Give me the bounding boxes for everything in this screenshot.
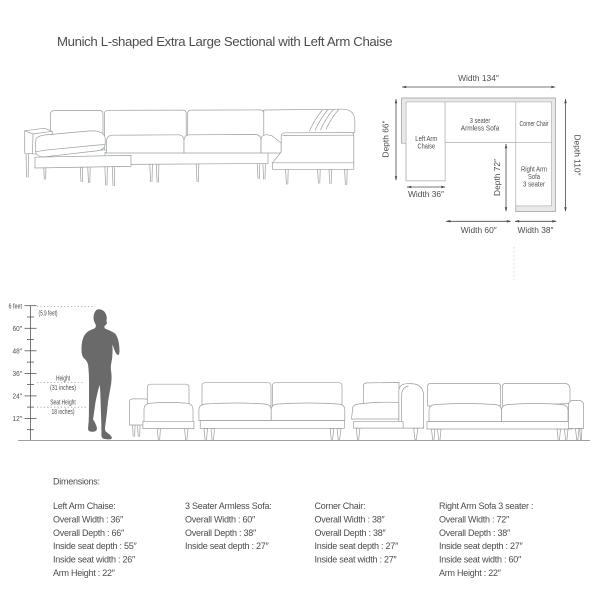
svg-text:Overall Width : 60″: Overall Width : 60″ bbox=[185, 514, 256, 524]
svg-text:Corner Chair:: Corner Chair: bbox=[315, 501, 366, 511]
svg-text:Overall Depth : 66″: Overall Depth : 66″ bbox=[53, 528, 125, 538]
svg-text:36″: 36″ bbox=[13, 369, 23, 378]
svg-text:Width 60″: Width 60″ bbox=[461, 225, 497, 235]
svg-text:60″: 60″ bbox=[13, 324, 23, 333]
svg-text:Overall Depth : 38″: Overall Depth : 38″ bbox=[439, 528, 511, 538]
svg-text:Munich L-shaped Extra Large Se: Munich L-shaped Extra Large Sectional wi… bbox=[57, 34, 392, 49]
svg-text:Depth 66″: Depth 66″ bbox=[381, 120, 391, 157]
svg-text:48″: 48″ bbox=[13, 346, 23, 355]
svg-text:Armless Sofa: Armless Sofa bbox=[461, 124, 500, 133]
svg-text:18 inches): 18 inches) bbox=[52, 407, 75, 416]
svg-text:3 Seater Armless Sofa:: 3 Seater Armless Sofa: bbox=[185, 501, 272, 511]
svg-text:12″: 12″ bbox=[13, 414, 23, 423]
svg-text:Inside seat width : 60″: Inside seat width : 60″ bbox=[439, 555, 522, 565]
svg-text:Overall Depth : 38″: Overall Depth : 38″ bbox=[185, 528, 257, 538]
svg-text:Arm Height : 22″: Arm Height : 22″ bbox=[439, 568, 502, 578]
svg-text:Inside seat depth : 27″: Inside seat depth : 27″ bbox=[185, 541, 270, 551]
svg-text:Dimensions:: Dimensions: bbox=[53, 477, 100, 487]
svg-text:Inside seat depth : 55″: Inside seat depth : 55″ bbox=[53, 541, 138, 551]
svg-text:Inside seat width : 26″: Inside seat width : 26″ bbox=[53, 555, 136, 565]
svg-text:6 feet: 6 feet bbox=[9, 301, 23, 310]
svg-text:Chaise: Chaise bbox=[418, 142, 436, 151]
svg-text:3 seater: 3 seater bbox=[523, 180, 546, 189]
svg-text:Overall Width : 72″: Overall Width : 72″ bbox=[439, 514, 510, 524]
svg-text:Inside seat depth : 27″: Inside seat depth : 27″ bbox=[439, 541, 524, 551]
svg-text:Width 38″: Width 38″ bbox=[517, 225, 553, 235]
svg-text:Depth 110″: Depth 110″ bbox=[573, 135, 583, 176]
svg-text:Overall Width : 36″: Overall Width : 36″ bbox=[53, 514, 124, 524]
svg-text:Corner Chair: Corner Chair bbox=[520, 119, 549, 128]
svg-text:Depth 72″: Depth 72″ bbox=[492, 159, 502, 196]
svg-text:Left Arm Chaise:: Left Arm Chaise: bbox=[53, 501, 116, 511]
svg-text:Overall Depth : 38″: Overall Depth : 38″ bbox=[315, 528, 387, 538]
svg-text:Seat Height: Seat Height bbox=[50, 398, 76, 407]
svg-text:(5.9 feet): (5.9 feet) bbox=[39, 309, 58, 318]
svg-text:Inside seat width : 27″: Inside seat width : 27″ bbox=[315, 555, 398, 565]
svg-text:Right Arm Sofa 3 seater :: Right Arm Sofa 3 seater : bbox=[439, 501, 533, 511]
svg-text:Width 36″: Width 36″ bbox=[408, 189, 444, 199]
svg-text:Inside seat depth : 27″: Inside seat depth : 27″ bbox=[315, 541, 400, 551]
svg-text:Width 134″: Width 134″ bbox=[458, 73, 499, 83]
svg-text:Overall Width : 38″: Overall Width : 38″ bbox=[315, 514, 386, 524]
svg-text:Height: Height bbox=[56, 374, 70, 383]
svg-text:24″: 24″ bbox=[13, 391, 23, 400]
svg-text:Arm Height : 22″: Arm Height : 22″ bbox=[53, 568, 116, 578]
svg-text:(31 inches): (31 inches) bbox=[50, 383, 76, 392]
